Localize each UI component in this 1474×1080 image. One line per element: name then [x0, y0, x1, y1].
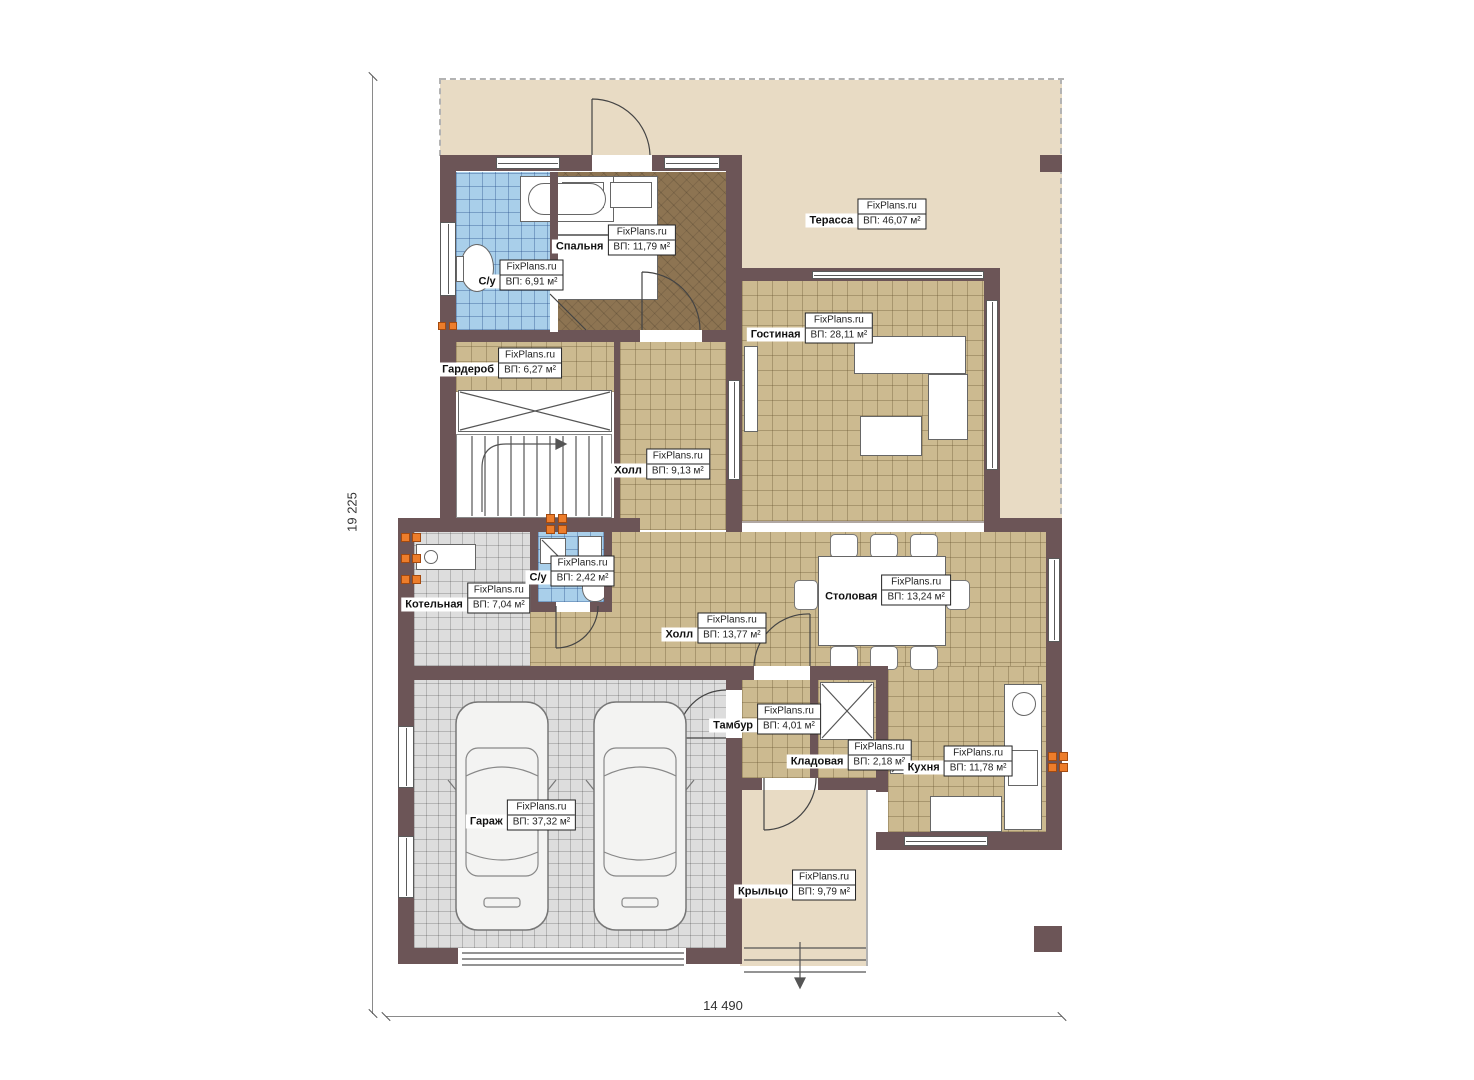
wall-segment — [726, 155, 742, 345]
door-opening — [592, 155, 652, 171]
room-label-bath1: С/уFixPlans.ruВП: 6,91 м² — [475, 260, 564, 291]
door-opening — [556, 602, 590, 612]
room-area: ВП: 11,79 м² — [608, 240, 675, 255]
room-label-boiler: КотельнаяFixPlans.ruВП: 7,04 м² — [401, 583, 530, 614]
room-area: ВП: 4,01 м² — [758, 719, 820, 734]
window — [1048, 558, 1060, 642]
floor-hall1 — [620, 342, 726, 530]
floor-plan-canvas: ТерассаFixPlans.ruВП: 46,07 м²ГостинаяFi… — [0, 0, 1474, 1080]
door-opening — [550, 290, 558, 332]
watermark-text: FixPlans.ru — [647, 450, 709, 464]
stairs-area — [456, 434, 612, 518]
watermark-text: FixPlans.ru — [608, 226, 675, 240]
pantry-shelf — [820, 682, 874, 740]
socket-marker — [1048, 763, 1057, 772]
sofa-corner — [928, 374, 968, 440]
room-name: Гостиная — [747, 328, 805, 342]
dimension-line-bottom — [386, 1016, 1062, 1017]
boiler-unit — [424, 550, 438, 564]
kitchen-counter — [930, 796, 1002, 832]
door-opening — [762, 778, 818, 790]
room-label-living: ГостинаяFixPlans.ruВП: 28,11 м² — [747, 313, 873, 344]
sink-base — [456, 256, 464, 282]
coffee-table — [860, 416, 922, 456]
room-name: С/у — [526, 571, 551, 585]
socket-marker — [412, 554, 421, 563]
dimension-line-left — [372, 76, 373, 1014]
watermark-text: FixPlans.ru — [945, 747, 1012, 761]
window — [728, 380, 740, 480]
room-name: С/у — [475, 275, 500, 289]
floor-terrace — [440, 80, 1062, 156]
watermark-text: FixPlans.ru — [858, 200, 925, 214]
room-label-hall2: ХоллFixPlans.ruВП: 13,77 м² — [661, 613, 766, 644]
room-area: ВП: 11,78 м² — [945, 761, 1012, 776]
room-label-garage: ГаражFixPlans.ruВП: 37,32 м² — [466, 800, 576, 831]
window — [496, 157, 560, 169]
socket-marker — [558, 525, 567, 534]
room-name: Кладовая — [787, 755, 848, 769]
room-label-dining: СтоловаяFixPlans.ruВП: 13,24 м² — [821, 575, 951, 606]
socket-marker — [401, 533, 410, 542]
watermark-text: FixPlans.ru — [793, 871, 855, 885]
room-label-pantry: КладоваяFixPlans.ruВП: 2,18 м² — [787, 740, 912, 771]
window — [398, 726, 414, 788]
watermark-text: FixPlans.ru — [468, 584, 530, 598]
porch-arrow — [795, 978, 805, 988]
living-floor-edge — [742, 521, 984, 523]
room-label-hall1: ХоллFixPlans.ruВП: 9,13 м² — [610, 449, 710, 480]
tv-bench — [744, 346, 758, 432]
room-name: Гардероб — [438, 363, 498, 377]
socket-marker — [546, 514, 555, 523]
watermark-text: FixPlans.ru — [501, 261, 563, 275]
dimension-left-label: 19 225 — [345, 492, 360, 532]
room-name: Кухня — [904, 761, 944, 775]
floor-terrace — [998, 268, 1062, 521]
column — [1040, 155, 1062, 172]
chair — [830, 534, 858, 558]
window — [398, 836, 414, 898]
room-area: ВП: 37,32 м² — [508, 815, 575, 830]
porch-edge — [866, 790, 868, 966]
room-label-kitchen: КухняFixPlans.ruВП: 11,78 м² — [904, 746, 1013, 777]
wall-segment — [398, 518, 640, 532]
wall-segment — [440, 155, 456, 532]
watermark-text: FixPlans.ru — [552, 557, 614, 571]
watermark-text: FixPlans.ru — [499, 349, 561, 363]
pillow — [610, 182, 652, 208]
room-name: Терасса — [805, 214, 857, 228]
watermark-text: FixPlans.ru — [698, 614, 765, 628]
room-label-bath2: С/уFixPlans.ruВП: 2,42 м² — [526, 556, 615, 587]
room-area: ВП: 28,11 м² — [806, 328, 873, 343]
room-area: ВП: 9,79 м² — [793, 885, 855, 900]
door-opening — [754, 666, 810, 680]
window — [812, 271, 984, 279]
dimension-bottom-label: 14 490 — [703, 998, 743, 1013]
dimension-tick — [368, 72, 377, 81]
watermark-text: FixPlans.ru — [758, 705, 820, 719]
wardrobe-closet — [458, 390, 612, 432]
wall-segment — [398, 666, 742, 680]
room-area: ВП: 6,27 м² — [499, 363, 561, 378]
socket-marker — [558, 514, 567, 523]
watermark-text: FixPlans.ru — [508, 801, 575, 815]
chair — [910, 646, 938, 670]
room-label-terrace: ТерассаFixPlans.ruВП: 46,07 м² — [805, 199, 926, 230]
room-label-bedroom: СпальняFixPlans.ruВП: 11,79 м² — [552, 225, 676, 256]
socket-marker — [1048, 752, 1057, 761]
socket-marker — [1059, 752, 1068, 761]
room-name: Тамбур — [709, 719, 757, 733]
wall-segment — [614, 342, 620, 530]
window — [904, 836, 988, 846]
room-label-wardrobe: ГардеробFixPlans.ruВП: 6,27 м² — [438, 348, 562, 379]
room-name: Спальня — [552, 240, 608, 254]
window — [440, 222, 456, 296]
door-opening — [640, 330, 702, 342]
room-area: ВП: 9,13 м² — [647, 464, 709, 479]
room-name: Холл — [661, 628, 697, 642]
terrace-boundary-top — [440, 78, 1064, 80]
wall-segment — [398, 666, 414, 964]
room-name: Гараж — [466, 815, 507, 829]
terrace-boundary-right — [1060, 78, 1062, 524]
chair — [794, 580, 818, 610]
room-area: ВП: 2,18 м² — [848, 755, 910, 770]
watermark-text: FixPlans.ru — [848, 741, 910, 755]
socket-marker — [401, 554, 410, 563]
socket-marker — [438, 322, 446, 330]
bathtub-basin — [528, 183, 606, 215]
watermark-text: FixPlans.ru — [882, 576, 949, 590]
door-opening — [458, 948, 686, 964]
dimension-tick — [368, 1009, 377, 1018]
kitchen-sink — [1012, 692, 1036, 716]
stove — [1008, 750, 1038, 786]
watermark-text: FixPlans.ru — [806, 314, 873, 328]
room-name: Холл — [610, 464, 646, 478]
terrace-boundary-left — [439, 78, 441, 156]
socket-marker — [1059, 763, 1068, 772]
room-label-tambour: ТамбурFixPlans.ruВП: 4,01 м² — [709, 704, 821, 735]
room-name: Столовая — [821, 590, 881, 604]
window — [986, 300, 998, 470]
room-area: ВП: 6,91 м² — [501, 275, 563, 290]
room-name: Котельная — [401, 598, 467, 612]
column — [1034, 926, 1062, 952]
room-area: ВП: 46,07 м² — [858, 214, 925, 229]
chair — [870, 534, 898, 558]
chair — [910, 534, 938, 558]
socket-marker — [546, 525, 555, 534]
room-area: ВП: 13,24 м² — [882, 590, 949, 605]
socket-marker — [449, 322, 457, 330]
window — [664, 157, 720, 169]
room-name: Крыльцо — [734, 885, 792, 899]
room-label-porch: КрыльцоFixPlans.ruВП: 9,79 м² — [734, 870, 856, 901]
socket-marker — [412, 533, 421, 542]
room-area: ВП: 2,42 м² — [552, 571, 614, 586]
wall-segment — [876, 666, 888, 792]
room-area: ВП: 7,04 м² — [468, 598, 530, 613]
room-area: ВП: 13,77 м² — [698, 628, 765, 643]
